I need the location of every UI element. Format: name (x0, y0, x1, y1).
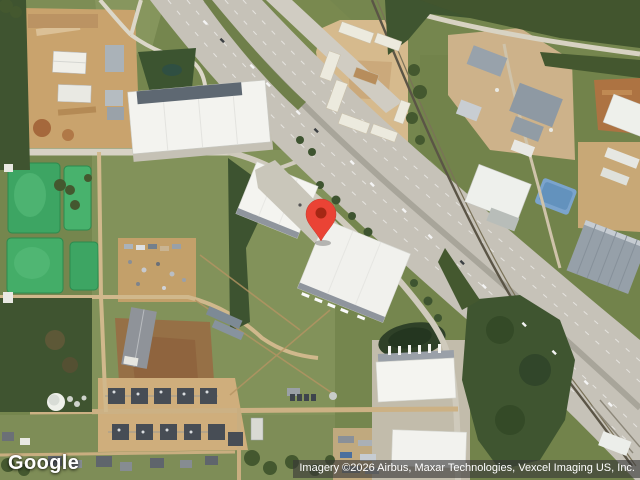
google-logo[interactable]: Google (8, 452, 79, 475)
map-viewport[interactable]: Google Imagery ©2026 Airbus, Maxar Techn… (0, 0, 640, 480)
warehouse-c (376, 344, 456, 402)
imagery-attribution: Imagery ©2026 Airbus, Maxar Technologies… (293, 460, 640, 478)
warehouse-large (128, 80, 274, 162)
satellite-map[interactable] (0, 0, 640, 480)
